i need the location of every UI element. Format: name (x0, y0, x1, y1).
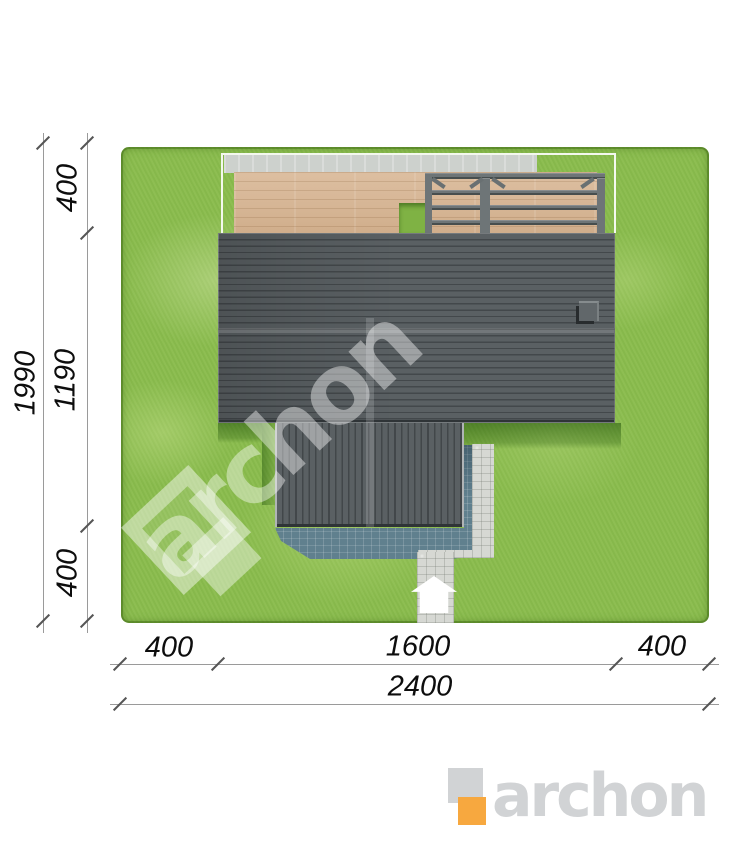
pergola-post-middle (480, 178, 490, 235)
roof-ridge-horizontal (219, 328, 614, 333)
pergola-post-right (597, 178, 605, 235)
pergola-top-beam (425, 173, 605, 179)
pergola-beam (490, 205, 597, 210)
dim-line-bottom-segments (110, 664, 719, 665)
dim-label-bottom-left: 400 (145, 632, 193, 665)
archon-logo-text: archon (492, 766, 706, 826)
dim-label-left-total: 1990 (10, 351, 43, 416)
dim-line-bottom-total (110, 704, 719, 705)
roof-ridge-vertical (366, 318, 374, 527)
dim-label-left-bottom: 400 (52, 549, 85, 597)
pergola-beam (490, 220, 597, 225)
walkway-side (472, 444, 494, 554)
grass-plot: archon (121, 147, 709, 623)
dim-label-bottom-right: 400 (638, 631, 686, 664)
dim-label-bottom-middle: 1600 (386, 631, 451, 664)
dim-label-left-middle: 1190 (50, 349, 83, 411)
archon-logo-orange-square-icon (458, 797, 486, 825)
chimney (579, 301, 599, 321)
deck-boundary (221, 153, 616, 233)
pergola-post-left (425, 173, 432, 235)
pergola-beam (432, 220, 480, 225)
roof-shadow-left (218, 423, 262, 443)
concrete-strip (224, 155, 537, 173)
dim-label-bottom-total: 2400 (388, 671, 453, 704)
dim-line-left-total (43, 133, 44, 633)
roof-main-block (218, 233, 615, 423)
pergola-beam (490, 190, 597, 195)
pergola (425, 173, 605, 235)
pergola-beam (432, 190, 480, 195)
archon-watermark-logo-icon (121, 465, 251, 595)
site-plan-canvas: archon 1990 400 1190 400 400 1600 400 24… (0, 0, 734, 854)
roof-shadow-stem (262, 423, 276, 505)
pergola-beam (432, 205, 480, 210)
dim-label-left-top: 400 (52, 164, 85, 212)
dim-line-left-segments (87, 133, 88, 633)
